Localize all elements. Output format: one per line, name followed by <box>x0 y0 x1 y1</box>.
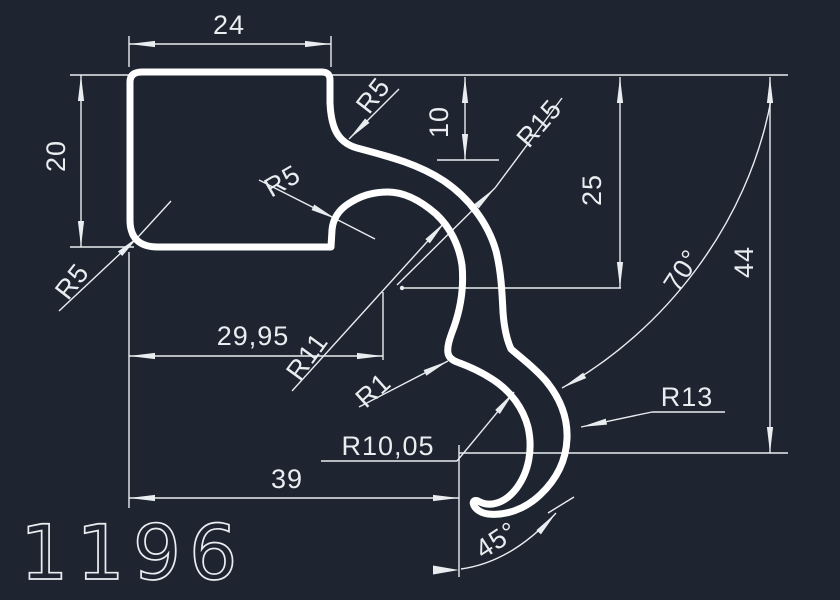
angle-45-arrow <box>433 566 459 575</box>
radius-r5-top-label: R5 <box>350 72 396 119</box>
dim-44-label: 44 <box>729 246 759 278</box>
cad-canvas: 24 20 10 25 44 29,95 39 R5 R5 R5 R15 R11… <box>0 0 840 600</box>
angle-45-label: 45° <box>470 516 523 565</box>
dim-25-label: 25 <box>577 174 607 206</box>
radius-r5-corner-label: R5 <box>49 258 95 305</box>
leader-r13 <box>581 412 652 427</box>
angle-70-label: 70° <box>658 244 707 297</box>
radius-r1-label: R1 <box>350 367 397 414</box>
dim-24-label: 24 <box>213 10 245 40</box>
dim-29-95-label: 29,95 <box>217 321 290 351</box>
dim-39-label: 39 <box>271 464 303 494</box>
arc-center-point <box>400 286 404 290</box>
leader-r15 <box>397 188 495 285</box>
angle-70-arc <box>562 100 771 388</box>
radius-r13-label: R13 <box>661 382 714 412</box>
radius-r5-mid-label: R5 <box>259 159 306 203</box>
cad-viewport: 24 20 10 25 44 29,95 39 R5 R5 R5 R15 R11… <box>0 0 840 600</box>
drawing-number: 1196 <box>20 508 245 597</box>
dim-20-label: 20 <box>41 140 71 172</box>
radius-r10-05-label: R10,05 <box>341 431 434 461</box>
leader-r10-05 <box>457 392 514 461</box>
dim-10-label: 10 <box>424 106 454 138</box>
